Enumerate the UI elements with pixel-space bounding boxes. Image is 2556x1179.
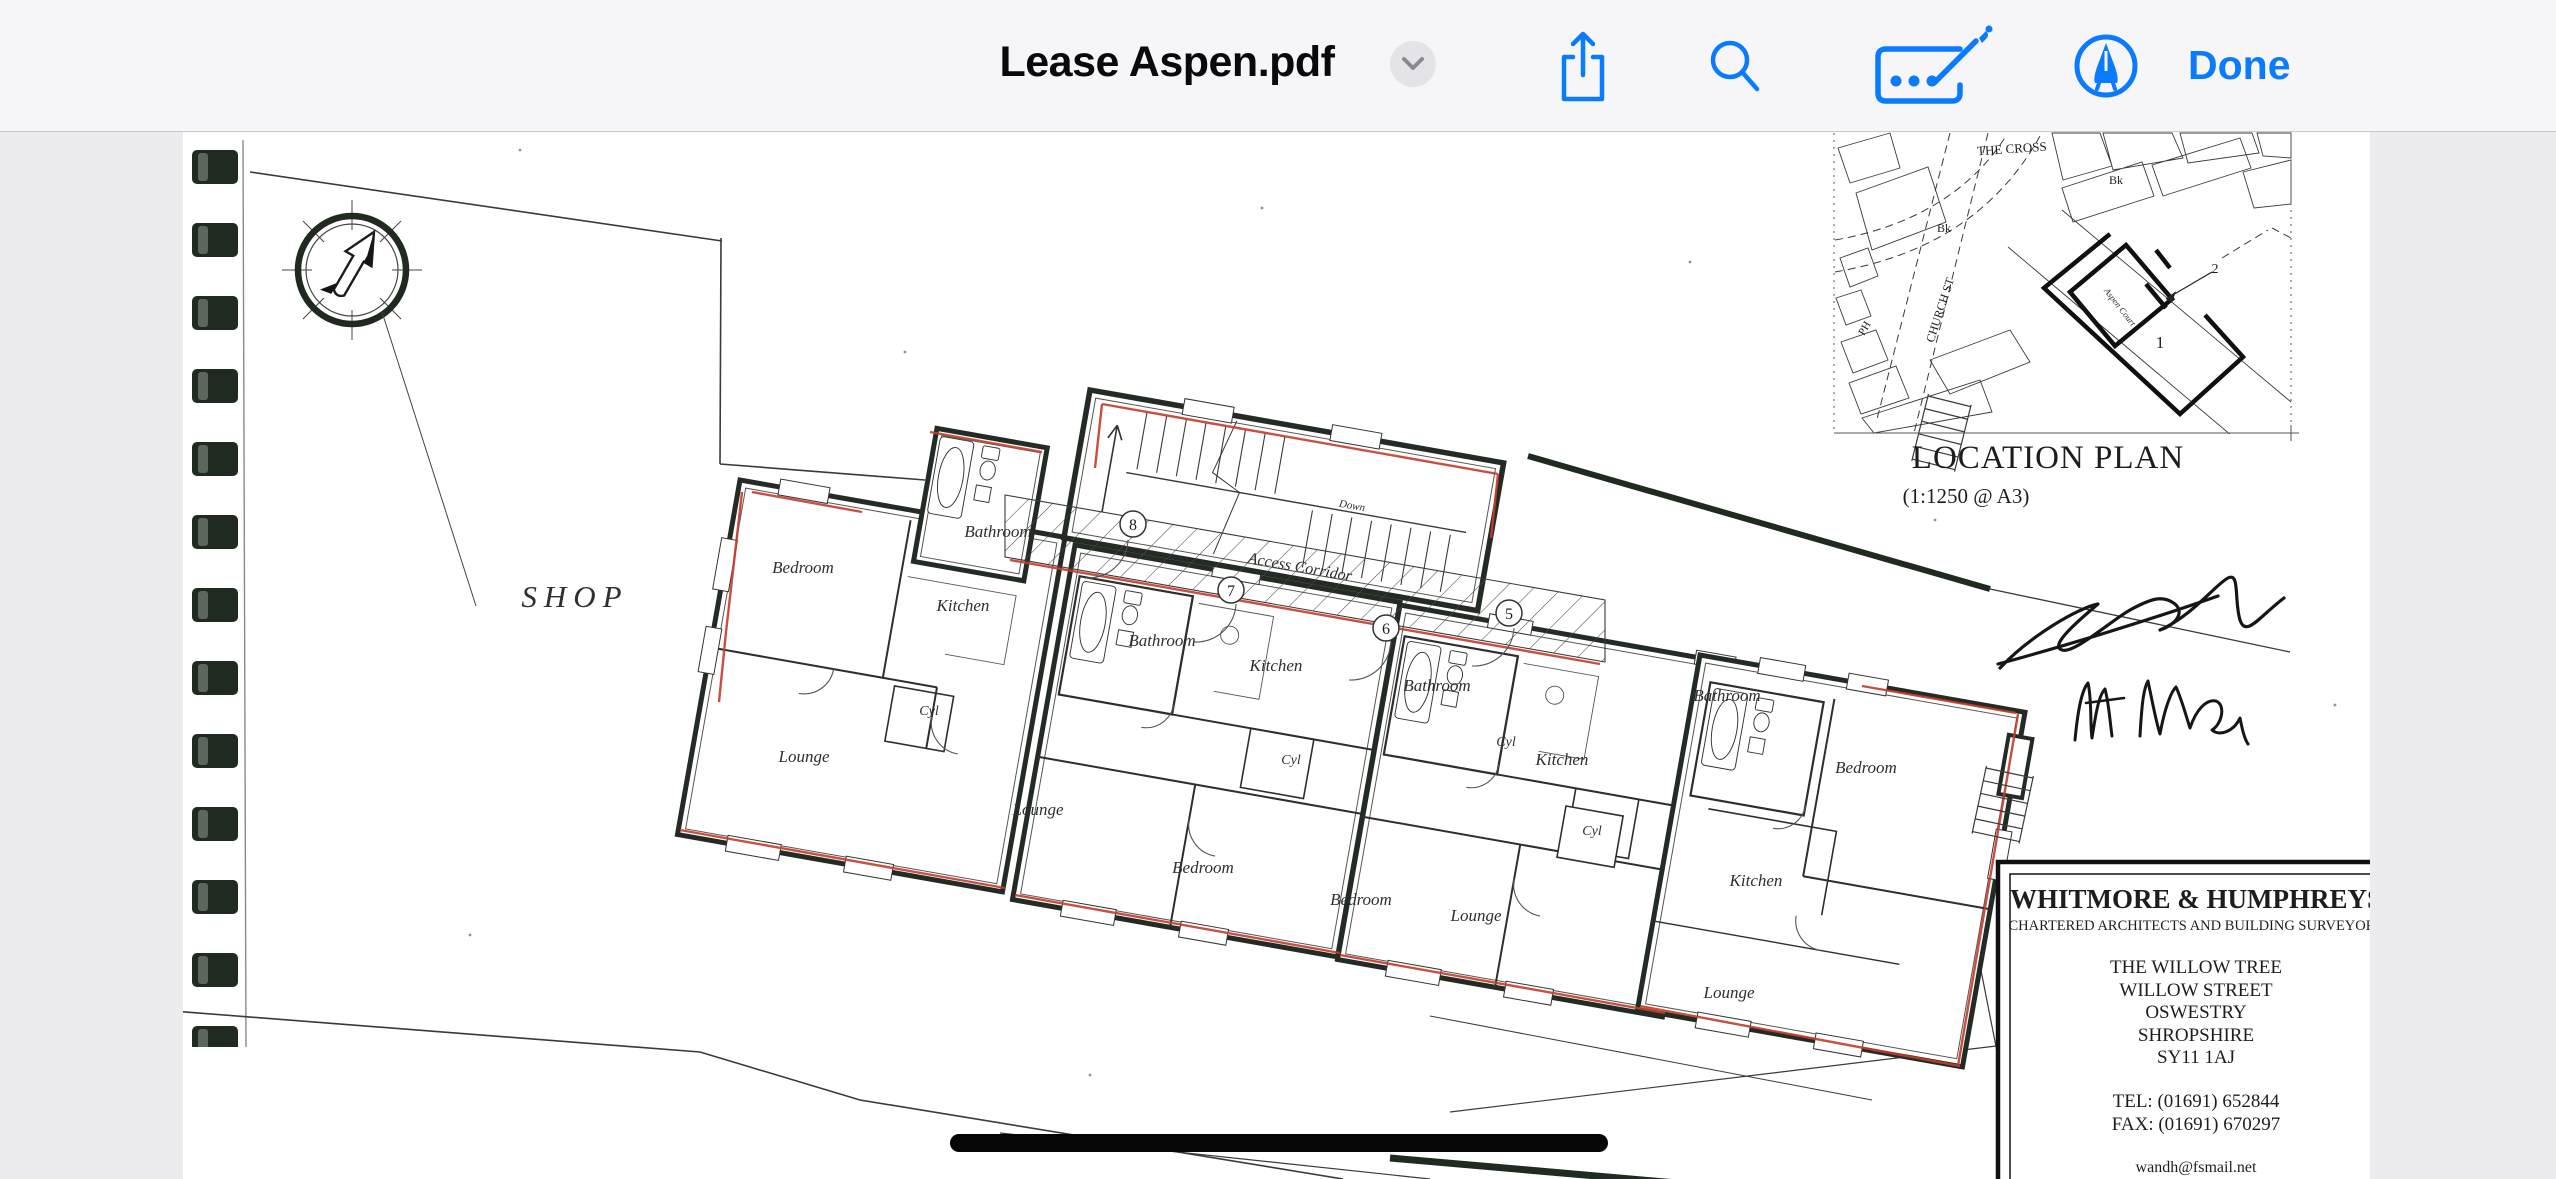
- north-arrow-compass: [282, 200, 476, 606]
- room-label: Bathroom: [964, 522, 1031, 541]
- unit-number: 8: [1129, 517, 1137, 534]
- title-menu-button[interactable]: [1390, 41, 1436, 87]
- markup-button[interactable]: [2071, 0, 2141, 131]
- room-label: Bedroom: [1330, 890, 1392, 909]
- room-label: Lounge: [778, 747, 830, 766]
- room-label: Bathroom: [1128, 631, 1195, 650]
- flat-5-module: [1636, 647, 2038, 1077]
- document-page[interactable]: SHOP: [183, 132, 2370, 1179]
- location-plan-inset: THE CROSS Bk Bk CHURCH ST PH 1 2 Aspen C…: [1834, 133, 2299, 508]
- map-label-church-st: CHURCH ST: [1923, 275, 1957, 344]
- fax-line: FAX: (01691) 670297: [2112, 1114, 2281, 1135]
- search-button[interactable]: [1705, 0, 1763, 131]
- aspen-court-plot-outline: [2044, 234, 2243, 414]
- map-label-bk: Bk: [1937, 221, 1951, 235]
- unit-number: 6: [1382, 621, 1390, 638]
- address-line: SHROPSHIRE: [2138, 1025, 2254, 1046]
- home-indicator[interactable]: [950, 1134, 1608, 1152]
- room-label: Bedroom: [1835, 758, 1897, 777]
- room-label: Cyl: [1281, 753, 1301, 768]
- pdf-viewer-screen: SHOP: [0, 0, 2556, 1179]
- room-label: Kitchen: [936, 596, 990, 615]
- map-label-plot1: 1: [2156, 333, 2165, 352]
- phone-line: TEL: (01691) 652844: [2113, 1091, 2280, 1112]
- room-label: Kitchen: [1249, 656, 1303, 675]
- unit-number: 7: [1227, 583, 1235, 600]
- location-plan-title: LOCATION PLAN: [1912, 440, 2184, 476]
- map-label-ph: PH: [1856, 319, 1873, 337]
- spiral-binding: [192, 140, 246, 1047]
- toolbar: Lease Aspen.pdf: [0, 0, 2556, 132]
- room-label: Bathroom: [1693, 686, 1760, 705]
- email-line: wandh@fsmail.net: [2136, 1159, 2257, 1176]
- address-line: WILLOW STREET: [2119, 980, 2273, 1001]
- firm-name: WHITMORE & HUMPHREYS: [2010, 884, 2370, 914]
- lease-plan-drawing: SHOP: [183, 132, 2370, 1179]
- autofill-button[interactable]: [1872, 0, 2004, 131]
- address-line: SY11 1AJ: [2157, 1047, 2235, 1068]
- share-icon: [1552, 27, 1614, 105]
- room-label: Bedroom: [1172, 858, 1234, 877]
- unit-number: 5: [1505, 606, 1513, 623]
- room-label: Kitchen: [1535, 750, 1589, 769]
- firm-subtitle: CHARTERED ARCHITECTS AND BUILDING SURVEY…: [2009, 918, 2371, 934]
- shop-label: SHOP: [521, 579, 628, 614]
- room-label: Lounge: [1012, 800, 1064, 819]
- address-line: THE WILLOW TREE: [2110, 957, 2282, 978]
- map-label-aspen-court: Aspen Court: [2102, 285, 2139, 328]
- room-label: Bathroom: [1403, 676, 1470, 695]
- markup-pen-icon: [2071, 31, 2141, 101]
- signatures: [1998, 577, 2284, 744]
- room-label: Lounge: [1450, 906, 1502, 925]
- search-icon: [1705, 35, 1763, 97]
- map-label-bk: Bk: [2109, 173, 2123, 187]
- room-label: Kitchen: [1729, 871, 1783, 890]
- room-label: Lounge: [1703, 983, 1755, 1002]
- share-button[interactable]: [1552, 0, 1614, 131]
- garden-wall-thick: [1390, 1158, 1780, 1179]
- flat-8-module: [668, 395, 1080, 900]
- architect-title-block: WHITMORE & HUMPHREYS CHARTERED ARCHITECT…: [1998, 862, 2370, 1179]
- address-line: OSWESTRY: [2145, 1002, 2247, 1023]
- document-title: Lease Aspen.pdf: [1000, 38, 1335, 87]
- room-label: Cyl: [919, 704, 939, 719]
- room-label: Cyl: [1496, 735, 1516, 750]
- map-label-plot2: 2: [2212, 262, 2219, 277]
- location-plan-scale: (1:1250 @ A3): [1903, 484, 2030, 508]
- done-button[interactable]: Done: [2188, 0, 2291, 131]
- room-label: Bedroom: [772, 558, 834, 577]
- map-label-the-cross: THE CROSS: [1977, 139, 2048, 159]
- room-label: Cyl: [1582, 824, 1602, 839]
- autofill-signature-icon: [1872, 23, 2004, 109]
- chevron-down-icon: [1401, 56, 1425, 72]
